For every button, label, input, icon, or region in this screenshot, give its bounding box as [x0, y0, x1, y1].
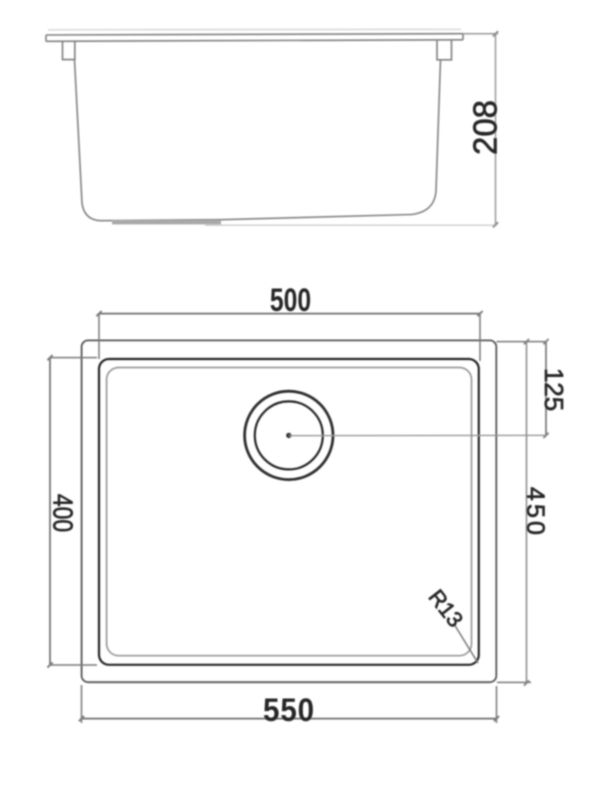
svg-text:125: 125 [539, 368, 569, 411]
svg-text:208: 208 [467, 100, 504, 155]
svg-text:400: 400 [47, 494, 78, 532]
svg-text:R13: R13 [424, 585, 469, 632]
svg-text:450: 450 [521, 487, 549, 538]
svg-text:550: 550 [263, 692, 315, 729]
svg-text:500: 500 [270, 283, 311, 319]
